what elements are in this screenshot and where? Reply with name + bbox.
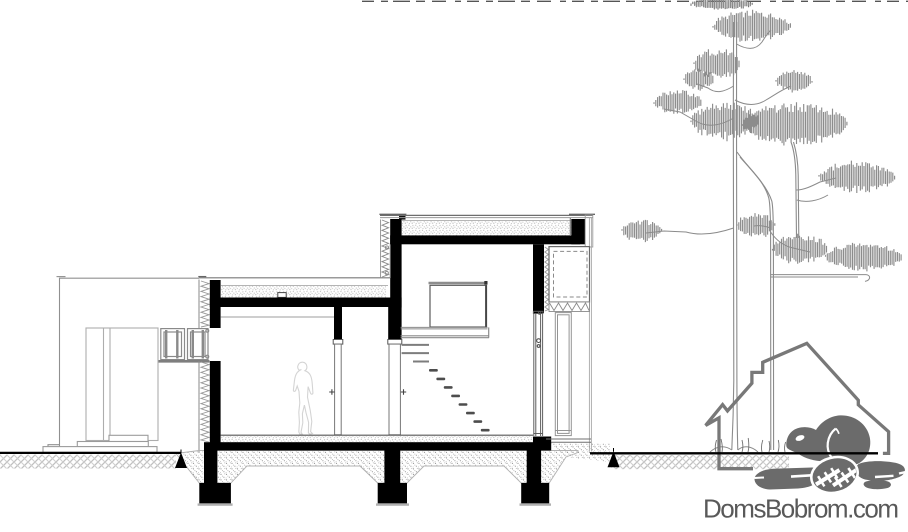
svg-text:DomsBobrom.com: DomsBobrom.com xyxy=(703,494,899,524)
